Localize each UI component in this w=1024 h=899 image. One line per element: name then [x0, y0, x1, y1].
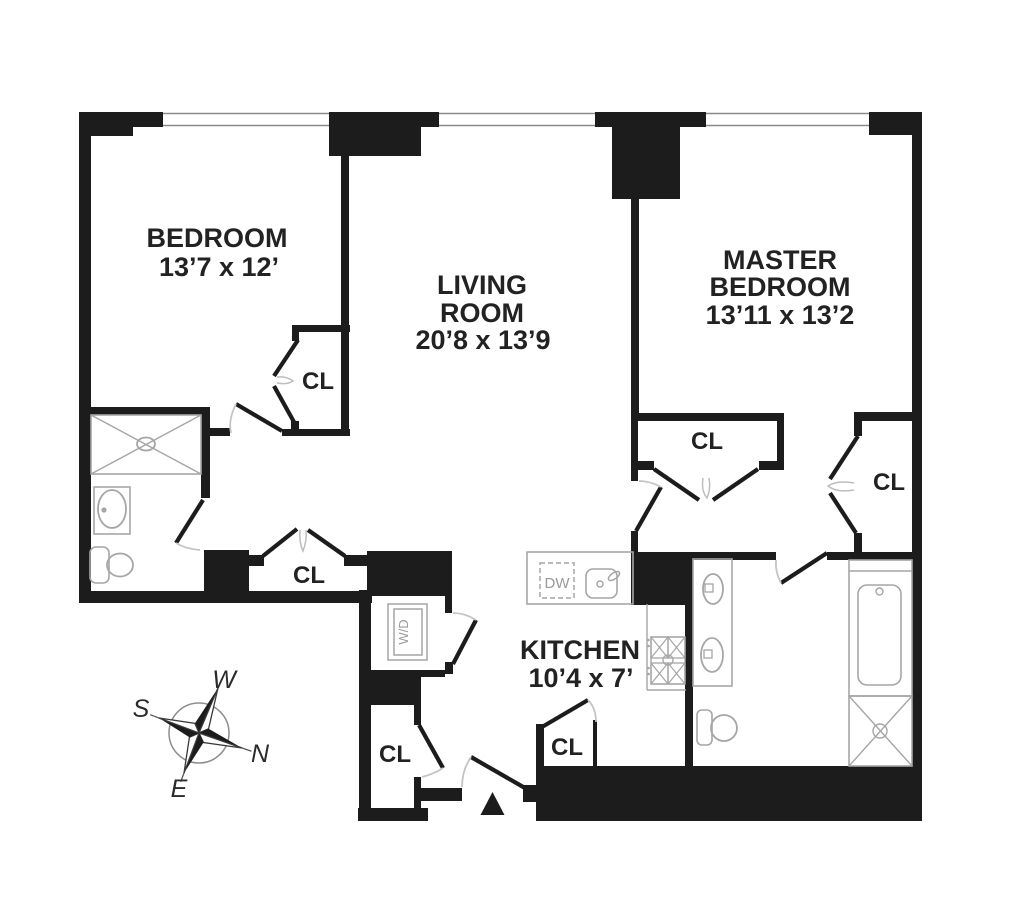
svg-text:13’7 x 12’: 13’7 x 12’ [159, 252, 279, 282]
svg-text:W/D: W/D [396, 619, 411, 644]
svg-text:CL: CL [293, 562, 325, 589]
svg-text:KITCHEN: KITCHEN [520, 635, 640, 665]
svg-text:ROOM: ROOM [440, 298, 524, 328]
svg-text:13’11 x 13’2: 13’11 x 13’2 [706, 300, 855, 330]
svg-text:DW: DW [545, 575, 571, 592]
svg-text:S: S [133, 695, 150, 723]
svg-text:E: E [171, 775, 188, 803]
svg-text:W: W [212, 666, 238, 694]
svg-text:N: N [251, 740, 270, 768]
svg-text:CL: CL [302, 368, 334, 395]
svg-text:10’4 x 7’: 10’4 x 7’ [528, 663, 633, 693]
svg-text:LIVING: LIVING [437, 270, 527, 300]
svg-text:20’8 x 13’9: 20’8 x 13’9 [415, 325, 550, 355]
svg-text:BEDROOM: BEDROOM [710, 272, 851, 302]
svg-text:CL: CL [379, 741, 411, 768]
svg-text:BEDROOM: BEDROOM [147, 223, 288, 253]
svg-text:CL: CL [551, 734, 583, 761]
svg-text:CL: CL [873, 469, 905, 496]
svg-text:CL: CL [691, 428, 723, 455]
svg-text:MASTER: MASTER [723, 245, 837, 275]
